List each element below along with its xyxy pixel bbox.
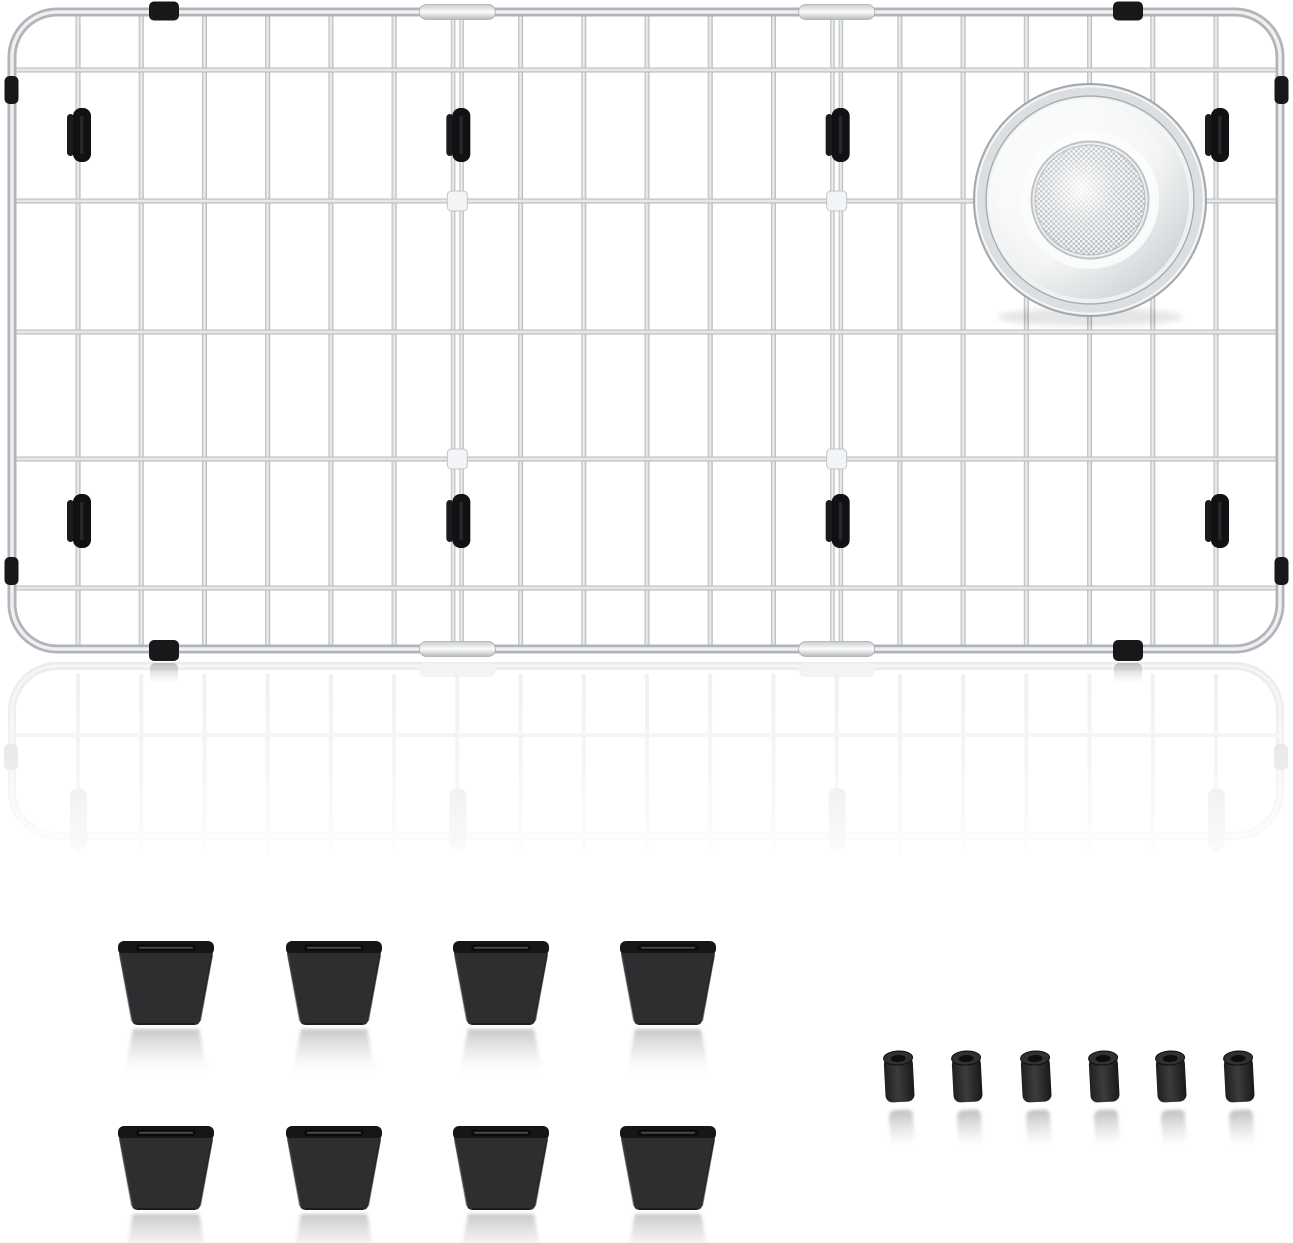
rubber-foot-slot-line [474,1132,528,1134]
grid-wire-horizontal [14,586,1278,591]
rubber-foot-body [454,1138,548,1210]
rubber-foot-slot-line [641,947,695,949]
reflected-wire [139,674,143,852]
rubber-foot [620,941,716,1071]
rubber-foot-body [287,953,381,1025]
reflected-clamp [150,663,178,683]
junction-block [827,449,847,469]
rubber-foot-reflection [627,1029,709,1071]
reflected-wire [1151,674,1155,852]
wire-foot-sheen [1218,502,1222,540]
wire-foot-arm [826,114,833,156]
product-scene [0,0,1293,1243]
rubber-foot [118,1126,214,1243]
wire-foot-sheen [80,116,84,154]
reflected-wire [708,674,712,852]
rubber-spacer-reflection [957,1109,983,1146]
wire-foot-arm [446,500,453,542]
rubber-foot-body [454,953,548,1025]
wire-foot [446,108,470,162]
rubber-foot-reflection [460,1214,542,1243]
frame-sleeve [419,5,495,20]
wire-foot-arm [446,114,453,156]
reflected-wire-foot [70,788,87,850]
rubber-foot-slot-line [474,947,528,949]
rubber-foot-slot-line [139,947,193,949]
rubber-foot-slot-line [641,1132,695,1134]
reflected-side-clip [4,744,18,770]
rubber-foot-reflection [125,1214,207,1243]
drain-strainer [974,84,1206,326]
frame-side-clip [1275,557,1289,585]
rubber-foot-reflection [460,1029,542,1071]
rubber-foot [453,941,549,1071]
reflected-wire [582,674,586,852]
wire-foot-sheen [839,116,843,154]
rubber-foot-slot-line [307,1132,361,1134]
wire-foot-arm [1205,114,1212,156]
rubber-spacer [1088,1050,1122,1146]
reflected-wire [519,674,523,852]
rubber-foot-slot-line [139,1132,193,1134]
rubber-foot [286,941,382,1071]
wire-foot-sheen [839,502,843,540]
frame-sleeve [419,642,495,657]
grid-reflection [4,663,1288,852]
wire-foot [826,108,850,162]
rubber-spacer [1155,1050,1189,1146]
reflected-wire [266,674,270,852]
rubber-foot-body [119,1138,213,1210]
junction-block [447,191,467,211]
wire-foot-sheen [459,502,463,540]
junction-block [447,449,467,469]
reflected-wire [645,674,649,852]
frame-side-clip [1275,76,1289,104]
frame-side-clip [5,557,19,585]
frame-side-clip [5,76,19,104]
rubber-foot [620,1126,716,1243]
rubber-foot-body [621,953,715,1025]
rubber-spacer [1020,1050,1054,1146]
reflected-wire [1088,674,1092,852]
wire-foot-arm [67,114,74,156]
rubber-spacer-set [883,1050,1257,1146]
wire-foot-arm [826,500,833,542]
frame-clamp [1113,640,1143,661]
rubber-foot-reflection [627,1214,709,1243]
rubber-foot [118,941,214,1071]
rubber-foot-reflection [293,1214,375,1243]
reflected-wire [329,674,333,852]
wire-foot-arm [1205,500,1212,542]
reflected-side-clip [1274,744,1288,770]
product-image [0,0,1293,1243]
rubber-foot [286,1126,382,1243]
rubber-spacer [951,1050,985,1146]
reflected-wire [771,674,775,852]
rubber-foot-slot-line [307,947,361,949]
rubber-spacer [1223,1050,1257,1146]
grid-wire-horizontal [14,457,1278,462]
frame-sleeve [799,642,875,657]
frame-clamp [149,2,179,21]
rubber-foot-reflection [125,1029,207,1071]
wire-foot [67,494,91,548]
wire-foot-sheen [80,502,84,540]
reflected-wire-foot [829,788,846,850]
wire-foot [1205,494,1229,548]
reflected-clamp [1114,663,1142,683]
wire-foot-sheen [1218,116,1222,154]
rubber-spacer-reflection [1094,1109,1120,1146]
wire-foot [826,494,850,548]
rubber-spacer [883,1050,917,1146]
wire-foot-arm [67,500,74,542]
reflected-wire [202,674,206,852]
rubber-foot-reflection [293,1029,375,1071]
rubber-spacer-reflection [1026,1109,1052,1146]
wire-foot [1205,108,1229,162]
reflected-wire [1024,674,1028,852]
wire-foot-sheen [459,116,463,154]
frame-sleeve [799,5,875,20]
rubber-foot-body [119,953,213,1025]
reflected-wire-foot [449,788,466,850]
rubber-spacer-reflection [889,1109,915,1146]
rubber-feet-set [118,941,716,1243]
grid-wire-horizontal [14,330,1278,335]
rubber-foot [453,1126,549,1243]
rubber-spacer-reflection [1161,1109,1187,1146]
rubber-spacer-reflection [1229,1109,1255,1146]
reflected-wire-foot [1208,788,1225,850]
rubber-foot-body [287,1138,381,1210]
grid-wire-horizontal [14,68,1278,73]
wire-foot [67,108,91,162]
reflected-horizontal-wire [14,733,1278,737]
wire-foot [446,494,470,548]
reflected-wire [392,674,396,852]
strainer-mesh-highlight [1035,145,1145,255]
frame-clamp [149,640,179,661]
frame-clamp [1113,2,1143,21]
junction-block [827,191,847,211]
rubber-foot-body [621,1138,715,1210]
reflected-wire [961,674,965,852]
reflected-wire [898,674,902,852]
